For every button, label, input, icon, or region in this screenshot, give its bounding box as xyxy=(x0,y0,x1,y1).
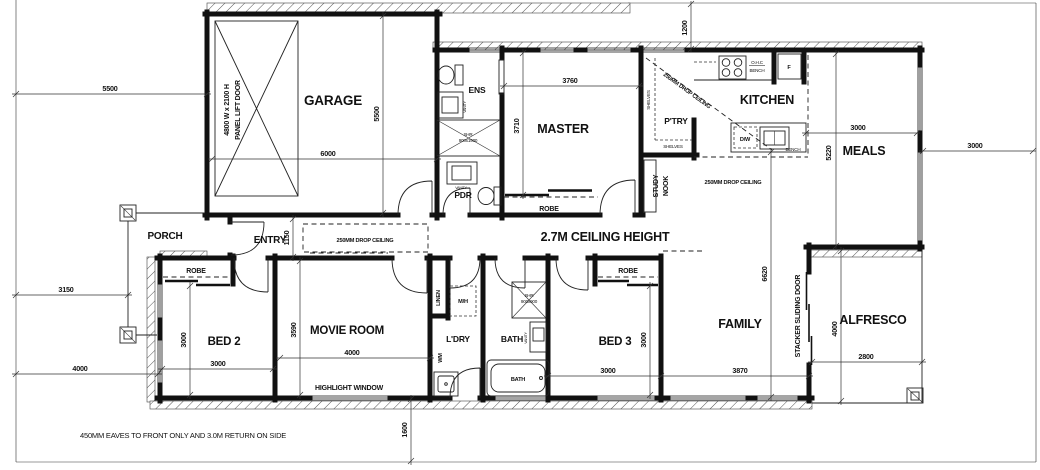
dim-entry-depth: 1150 xyxy=(282,230,291,245)
dim-alfresco-depth: 4000 xyxy=(830,321,839,336)
pdr-toilet xyxy=(478,187,501,205)
dim-side-left: 4000 xyxy=(72,364,87,373)
panel-door-label-line1: 4800 W x 2100 H xyxy=(224,84,231,136)
pantry-shelves-label-vertical: SHELVES xyxy=(646,90,651,110)
master-robe-label: ROBE xyxy=(539,206,559,213)
dim-bed3-depth: 3000 xyxy=(639,332,648,347)
pdr-vanity xyxy=(447,162,477,184)
bath-shower-label-line1: SHR xyxy=(524,293,534,298)
kitchen-label: KITCHEN xyxy=(740,93,794,107)
dim-garage-width: 6000 xyxy=(320,149,335,158)
stacker-door-label: STACKER SLIDING DOOR xyxy=(795,275,802,358)
dim-master-depth: 3710 xyxy=(512,118,521,133)
floor-plan-drawing: GARAGE PORCH ENTRY ENS PDR MASTER P'TRY … xyxy=(0,0,1040,470)
dim-porch-setback: 3150 xyxy=(58,285,73,294)
pdr-label: PDR xyxy=(454,190,471,200)
master-label: MASTER xyxy=(537,122,589,136)
dim-meals-width: 3000 xyxy=(850,123,865,132)
dim-movie-depth: 3590 xyxy=(289,322,298,337)
movie-room-label: MOVIE ROOM xyxy=(310,325,384,337)
stacker-door-panels xyxy=(807,272,812,365)
study-nook-label-line1: STUDY xyxy=(653,174,660,197)
dim-bed3-width: 3000 xyxy=(600,366,615,375)
bed3-robe-label: ROBE xyxy=(618,268,638,275)
ens-shower-label-line2: 900x1900 xyxy=(459,138,478,143)
dishwasher-label: D/W xyxy=(740,137,751,143)
pantry-shelves xyxy=(655,58,692,140)
bath-label: BATH xyxy=(501,334,523,344)
study-nook-label-line2: NOOK xyxy=(663,176,670,196)
slab-edges-and-posts xyxy=(120,205,923,403)
laundry-trough xyxy=(434,372,458,396)
manhole-label: M/H xyxy=(458,299,468,305)
bed2-robe-sliders xyxy=(163,277,230,285)
dim-alfresco-width: 2800 xyxy=(858,352,873,361)
dim-rear-setback: 1600 xyxy=(400,422,409,437)
drop-ceiling-note-entry: 250MM DROP CEILING xyxy=(337,238,394,244)
dim-site-front: 5500 xyxy=(102,84,117,93)
ens-toilet xyxy=(438,65,463,85)
panel-door-label-line2: PANEL LIFT DOOR xyxy=(235,80,242,140)
door-swings xyxy=(230,60,812,398)
bed2-robe-label: ROBE xyxy=(186,268,206,275)
bed3-robe-sliders xyxy=(598,277,658,285)
dim-bed2-width: 3000 xyxy=(210,359,225,368)
dim-family-depth: 6620 xyxy=(760,266,769,281)
porch-post xyxy=(120,327,136,343)
fridge-label: F xyxy=(787,65,791,71)
garage-label: GARAGE xyxy=(304,93,362,108)
alfresco-label: ALFRESCO xyxy=(839,313,907,327)
bath-vanity-label: VANITY xyxy=(524,331,528,343)
alfresco-post xyxy=(907,388,923,403)
dim-master-width: 3760 xyxy=(562,76,577,85)
floor-plan-canvas: GARAGE PORCH ENTRY ENS PDR MASTER P'TRY … xyxy=(0,0,1040,470)
ceiling-height-note: 2.7M CEILING HEIGHT xyxy=(541,230,670,244)
dim-bed2-depth: 3000 xyxy=(179,332,188,347)
family-label: FAMILY xyxy=(718,317,762,331)
bath-vanity xyxy=(530,322,546,352)
dim-family-width: 3870 xyxy=(732,366,747,375)
dim-meals-depth: 5220 xyxy=(824,145,833,160)
porch-label: PORCH xyxy=(147,231,182,242)
ens-vanity-label: VANITY xyxy=(463,100,467,112)
bed2-label: BED 2 xyxy=(208,336,241,348)
dim-side-setback: 3000 xyxy=(967,141,982,150)
ens-label: ENS xyxy=(469,85,486,95)
dim-garage-depth: 5500 xyxy=(372,106,381,121)
bath-tub-label: BATH xyxy=(511,377,525,383)
ens-shower-label-line1: SHR xyxy=(463,132,473,137)
drop-ceiling-outline xyxy=(303,55,808,253)
pantry-label: P'TRY xyxy=(664,116,688,126)
porch-post xyxy=(120,205,136,221)
dim-front-setback: 1200 xyxy=(680,20,689,35)
ens-vanity xyxy=(438,92,463,118)
highlight-window-label: HIGHLIGHT WINDOW xyxy=(315,385,384,392)
laundry-label: L'DRY xyxy=(446,334,470,344)
pantry-shelves-label-horizontal: SHELVES xyxy=(663,144,683,149)
pdr-vanity-label: VANITY xyxy=(455,186,467,190)
dim-movie-width: 4000 xyxy=(344,348,359,357)
bed3-label: BED 3 xyxy=(599,336,632,348)
eaves-note: 450MM EAVES TO FRONT ONLY AND 3.0M RETUR… xyxy=(80,431,286,440)
labels: GARAGE PORCH ENTRY ENS PDR MASTER P'TRY … xyxy=(58,20,982,440)
island-bench-label: BENCH xyxy=(785,147,800,152)
drop-ceiling-note-family: 250MM DROP CEILING xyxy=(705,180,762,186)
ohc-bench-label: BENCH xyxy=(749,68,764,73)
linen-label: LINEN xyxy=(436,290,442,306)
master-robe-sliders xyxy=(504,191,598,198)
bath-shower-label-line2: 900x900 xyxy=(521,299,538,304)
ohc-label: O.H.C xyxy=(751,60,764,65)
washing-machine-label: WM xyxy=(438,353,444,363)
meals-label: MEALS xyxy=(843,144,886,158)
drop-ceiling-note-kitchen: 250MM DROP CEILING xyxy=(662,72,712,110)
